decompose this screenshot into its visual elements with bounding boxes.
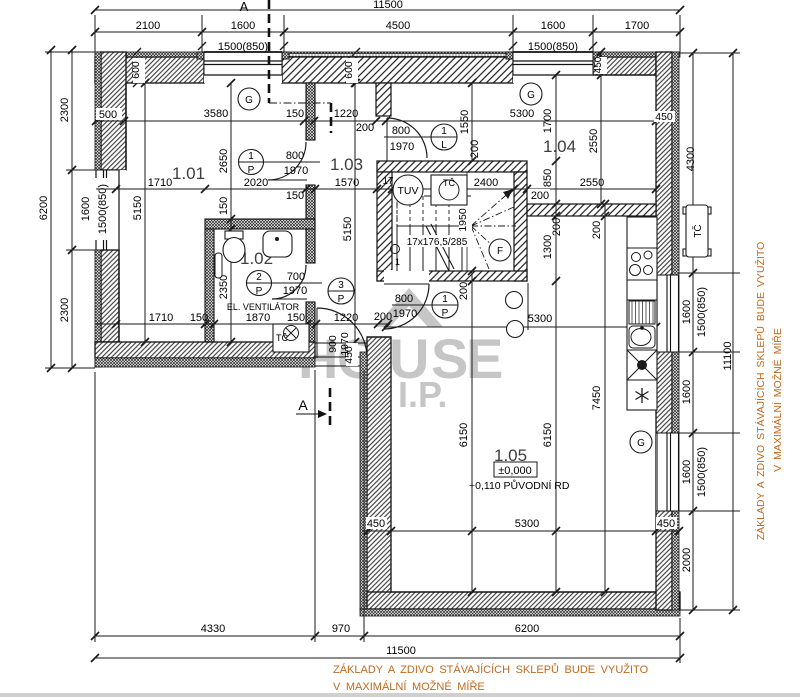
svg-text:200: 200: [531, 190, 549, 202]
svg-text:1700: 1700: [625, 20, 649, 32]
svg-text:200: 200: [591, 221, 603, 239]
svg-text:1600: 1600: [541, 20, 565, 32]
svg-text:+0,110 PŮVODNÍ RD: +0,110 PŮVODNÍ RD: [469, 479, 570, 492]
svg-text:1550: 1550: [459, 110, 471, 134]
svg-text:P: P: [248, 165, 255, 176]
svg-text:2550: 2550: [588, 129, 600, 153]
svg-text:1970: 1970: [284, 165, 308, 177]
svg-text:3: 3: [338, 280, 344, 291]
svg-text:200: 200: [374, 311, 392, 323]
svg-text:1600: 1600: [681, 460, 693, 484]
svg-text:4500: 4500: [386, 20, 410, 32]
svg-text:1: 1: [441, 126, 447, 137]
svg-text:450: 450: [655, 111, 673, 123]
svg-text:1300: 1300: [542, 235, 554, 259]
svg-text:11500: 11500: [373, 0, 403, 11]
svg-text:1970: 1970: [390, 141, 414, 153]
svg-text:2100: 2100: [136, 20, 160, 32]
svg-text:ZÁKLADY A ZDIVO STÁVAJÍCÍCH SK: ZÁKLADY A ZDIVO STÁVAJÍCÍCH SKLEPŮ BUDE …: [754, 242, 767, 541]
svg-text:1: 1: [442, 294, 448, 305]
svg-text:200: 200: [551, 218, 563, 236]
svg-text:TUV: TUV: [398, 185, 419, 197]
svg-text:200: 200: [356, 122, 374, 134]
svg-text:1: 1: [395, 257, 400, 267]
svg-text:500: 500: [99, 109, 117, 121]
svg-text:17x176,5/285: 17x176,5/285: [407, 237, 468, 248]
svg-text:200: 200: [458, 282, 470, 300]
svg-text:1500(850): 1500(850): [218, 41, 268, 53]
svg-text:200: 200: [469, 140, 481, 158]
svg-text:150: 150: [190, 312, 208, 324]
svg-text:1950: 1950: [457, 208, 469, 232]
svg-text:450: 450: [367, 518, 385, 530]
svg-text:±0,000: ±0,000: [498, 465, 532, 477]
svg-text:600: 600: [130, 61, 142, 79]
svg-text:1500(850): 1500(850): [696, 287, 708, 337]
svg-text:150: 150: [286, 108, 304, 120]
svg-text:1: 1: [248, 151, 254, 162]
svg-text:150: 150: [286, 190, 304, 202]
svg-text:A: A: [240, 0, 249, 14]
svg-text:1970: 1970: [393, 308, 417, 320]
svg-text:EL. VENTILÁTOR: EL. VENTILÁTOR: [227, 302, 300, 312]
svg-text:1710: 1710: [148, 177, 172, 189]
svg-text:G: G: [527, 90, 535, 101]
svg-text:450: 450: [657, 518, 675, 530]
svg-text:2: 2: [256, 272, 262, 283]
svg-text:450: 450: [593, 56, 604, 73]
svg-text:6150: 6150: [458, 423, 470, 447]
svg-text:5300: 5300: [515, 518, 539, 530]
svg-text:700: 700: [287, 271, 305, 283]
svg-text:TČ: TČ: [443, 178, 455, 188]
svg-text:4330: 4330: [201, 623, 225, 635]
svg-text:11500: 11500: [386, 645, 416, 657]
svg-text:150: 150: [287, 312, 305, 324]
svg-text:G: G: [637, 438, 645, 449]
svg-text:2300: 2300: [59, 298, 71, 322]
svg-text:2650: 2650: [218, 149, 230, 173]
svg-text:2300: 2300: [59, 98, 71, 122]
svg-text:17: 17: [382, 176, 394, 187]
svg-text:F: F: [497, 246, 503, 257]
svg-text:1500(850): 1500(850): [97, 184, 109, 234]
svg-text:6150: 6150: [542, 423, 554, 447]
svg-text:ZÁKLADY A ZDIVO STÁVAJÍCÍCH SK: ZÁKLADY A ZDIVO STÁVAJÍCÍCH SKLEPŮ BUDE …: [333, 663, 649, 676]
svg-text:1570: 1570: [335, 177, 359, 189]
svg-text:1600: 1600: [80, 197, 92, 221]
svg-text:1970: 1970: [339, 332, 351, 356]
svg-text:1.03: 1.03: [330, 155, 363, 174]
svg-text:1600: 1600: [231, 20, 255, 32]
svg-text:1.04: 1.04: [543, 137, 576, 156]
svg-text:1700: 1700: [542, 109, 554, 133]
svg-text:1.01: 1.01: [172, 164, 205, 183]
svg-text:1600: 1600: [681, 380, 693, 404]
svg-text:6200: 6200: [515, 623, 539, 635]
svg-text:P: P: [256, 286, 263, 297]
svg-text:1710: 1710: [149, 312, 173, 324]
svg-text:TČ: TČ: [691, 224, 704, 237]
svg-text:5150: 5150: [132, 196, 144, 220]
svg-text:850: 850: [542, 169, 554, 187]
svg-text:1500(850): 1500(850): [696, 447, 708, 497]
svg-text:800: 800: [286, 150, 304, 162]
svg-text:6200: 6200: [38, 196, 50, 220]
svg-text:TČ: TČ: [276, 333, 288, 343]
svg-text:5300: 5300: [510, 108, 534, 120]
svg-text:5150: 5150: [342, 217, 354, 241]
svg-text:5300: 5300: [528, 313, 552, 325]
svg-text:P: P: [338, 294, 345, 305]
svg-text:11100: 11100: [722, 342, 734, 371]
svg-text:P: P: [442, 308, 449, 319]
svg-text:7450: 7450: [591, 386, 603, 410]
svg-text:150: 150: [218, 197, 230, 215]
svg-text:L: L: [441, 140, 447, 151]
svg-text:1870: 1870: [246, 312, 270, 324]
svg-text:2000: 2000: [681, 548, 693, 572]
svg-text:4300: 4300: [685, 147, 697, 171]
svg-text:3580: 3580: [204, 108, 228, 120]
svg-text:2400: 2400: [474, 177, 498, 189]
svg-text:2020: 2020: [244, 177, 268, 189]
svg-text:A: A: [298, 397, 308, 413]
svg-text:1600: 1600: [681, 300, 693, 324]
svg-text:V MAXIMÁLNÍ MOŽNÉ MÍŘE: V MAXIMÁLNÍ MOŽNÉ MÍŘE: [333, 680, 485, 693]
svg-text:G: G: [245, 95, 253, 106]
svg-text:1970: 1970: [283, 285, 307, 297]
svg-text:600: 600: [343, 61, 355, 79]
svg-text:970: 970: [332, 623, 350, 635]
svg-text:1500(850): 1500(850): [528, 41, 578, 53]
svg-text:800: 800: [395, 293, 413, 305]
svg-text:800: 800: [392, 125, 410, 137]
svg-text:V MAXIMÁLNÍ MOŽNÉ MÍŘE: V MAXIMÁLNÍ MOŽNÉ MÍŘE: [771, 328, 784, 472]
svg-text:900: 900: [327, 335, 339, 353]
